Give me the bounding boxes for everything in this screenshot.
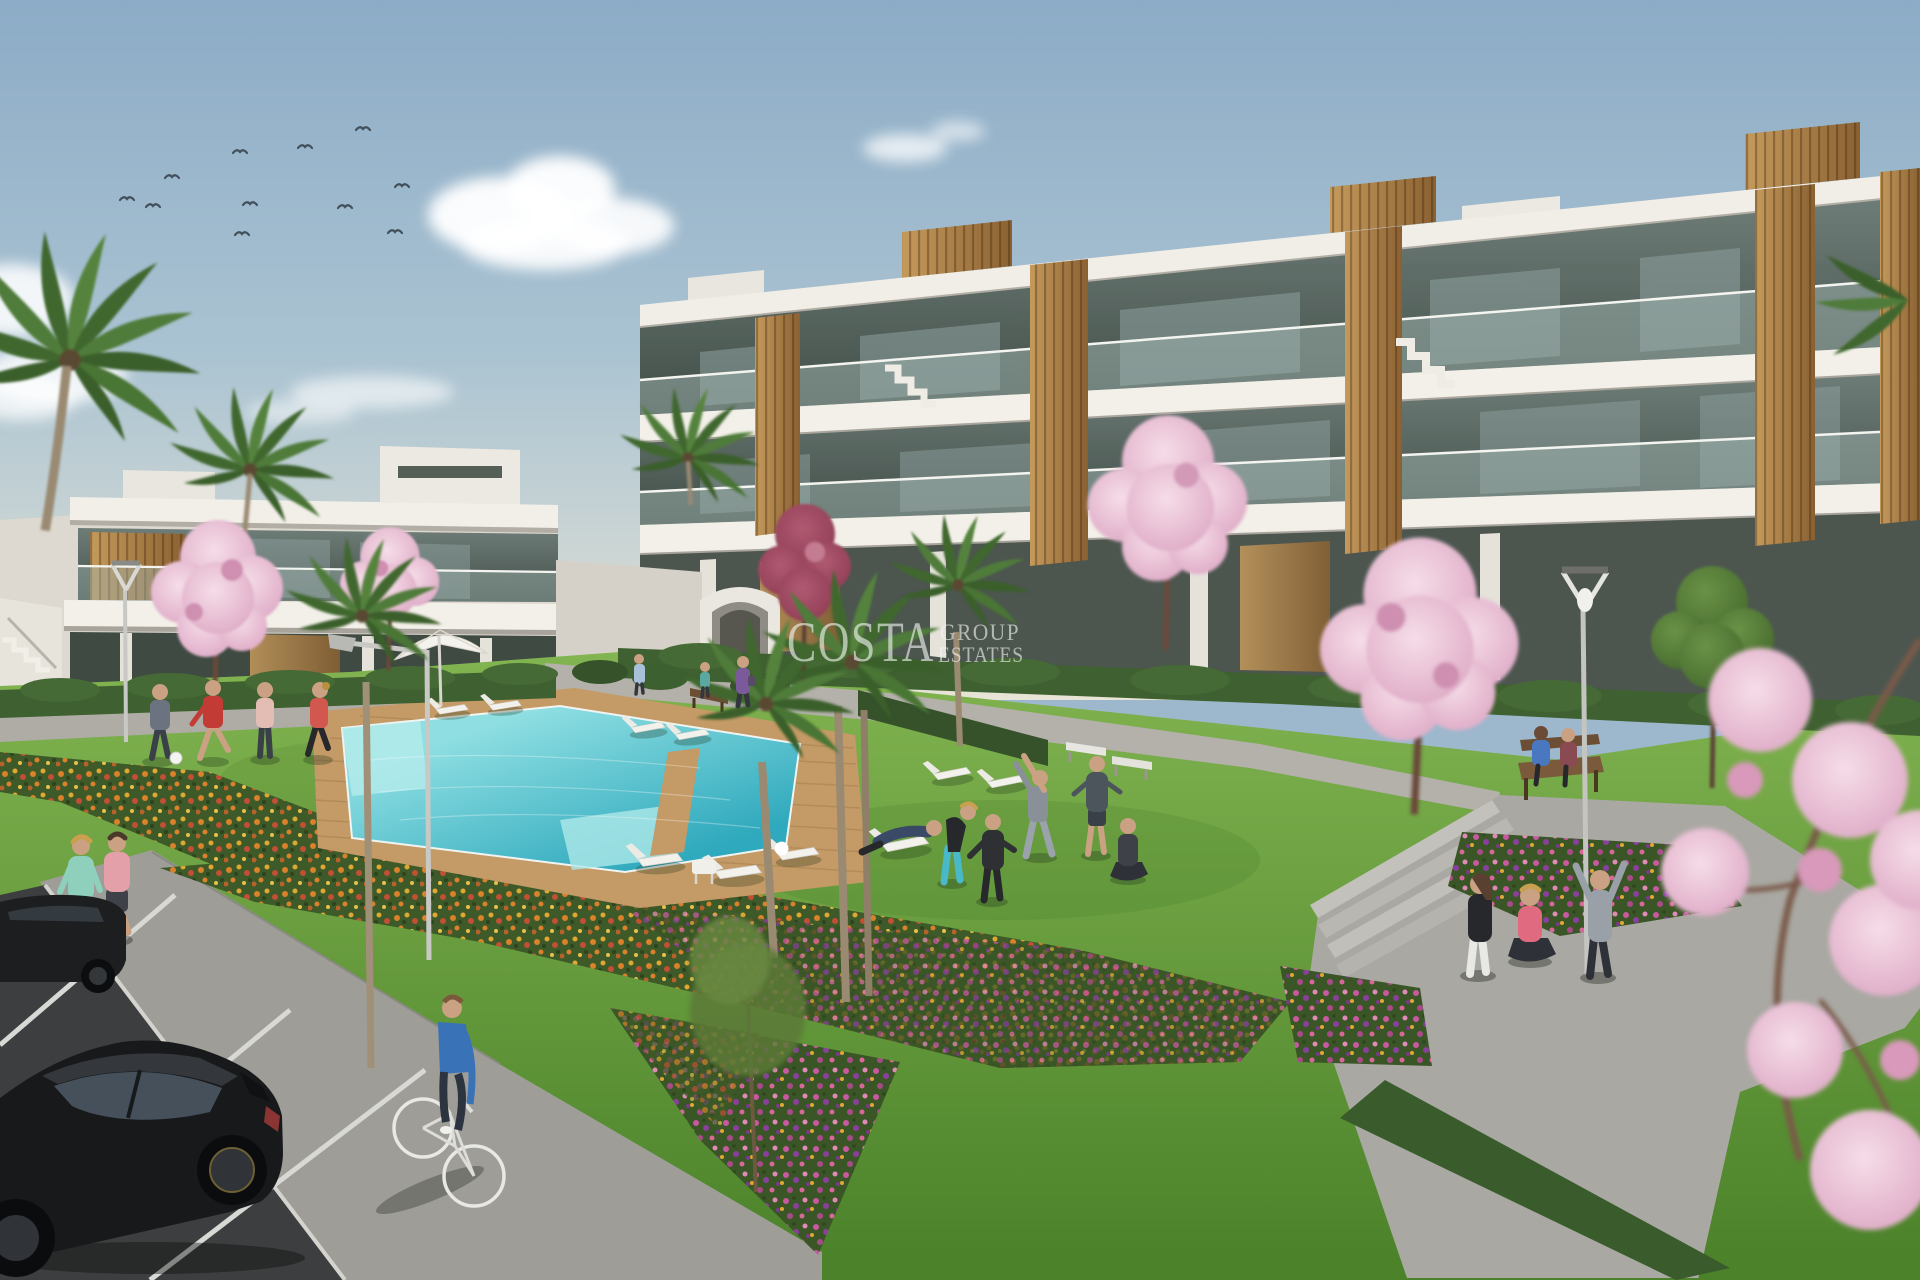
roof-box <box>123 470 215 500</box>
watermark: COSTA GROUP ESTATES <box>787 611 1024 674</box>
parked-car-partial <box>0 895 126 993</box>
scene-svg: COSTA GROUP ESTATES <box>0 0 1920 1280</box>
watermark-brand: COSTA <box>787 611 935 674</box>
watermark-word-estates: ESTATES <box>938 642 1024 667</box>
football <box>170 752 182 764</box>
render-image: COSTA GROUP ESTATES <box>0 0 1920 1280</box>
